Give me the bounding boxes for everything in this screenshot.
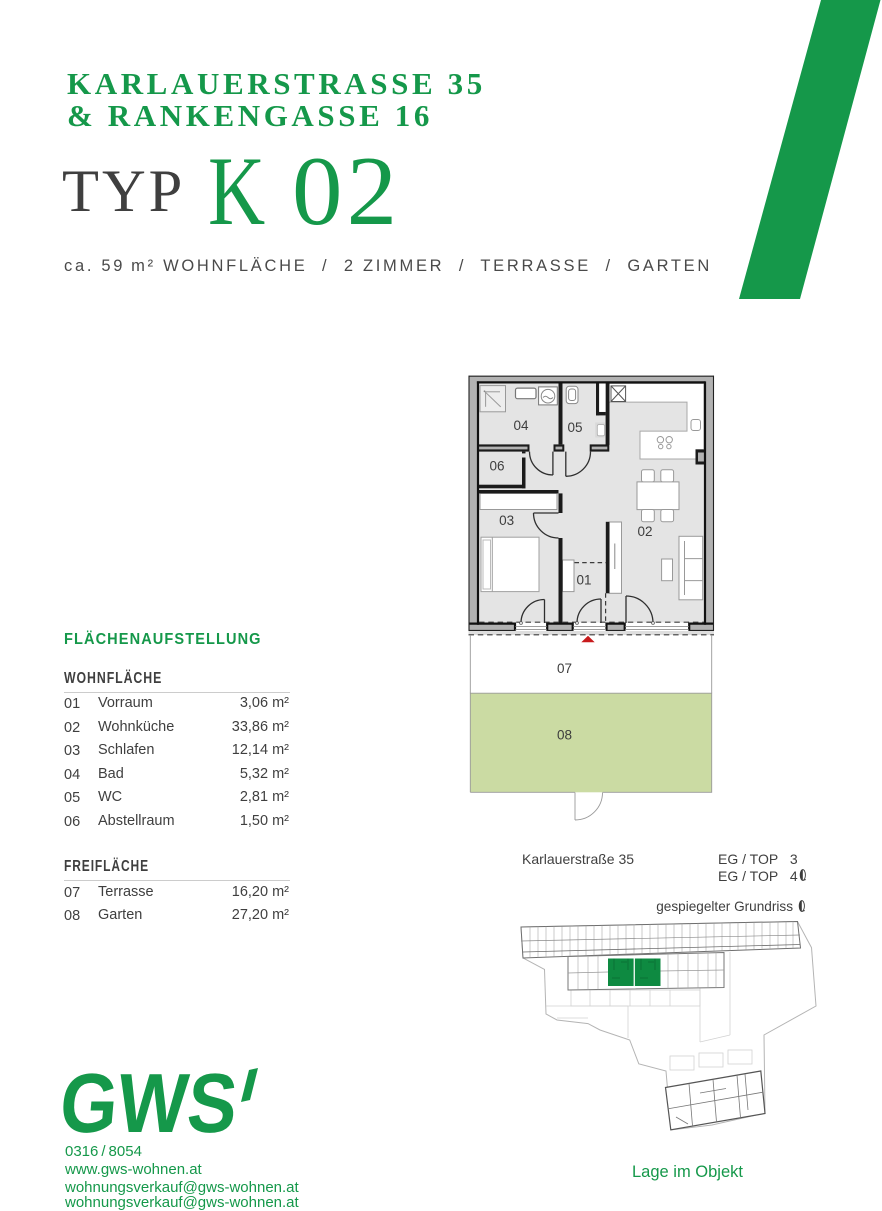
svg-text:01: 01 (576, 572, 591, 587)
svg-text:05: 05 (567, 420, 582, 435)
svg-text:07: 07 (557, 661, 572, 676)
svg-text:GWS: GWS (56, 1056, 241, 1150)
svg-text:06: 06 (489, 458, 504, 473)
svg-text:08: 08 (557, 727, 572, 742)
svg-text:04: 04 (513, 418, 529, 433)
svg-text:03: 03 (499, 513, 514, 528)
svg-text:02: 02 (637, 524, 652, 539)
